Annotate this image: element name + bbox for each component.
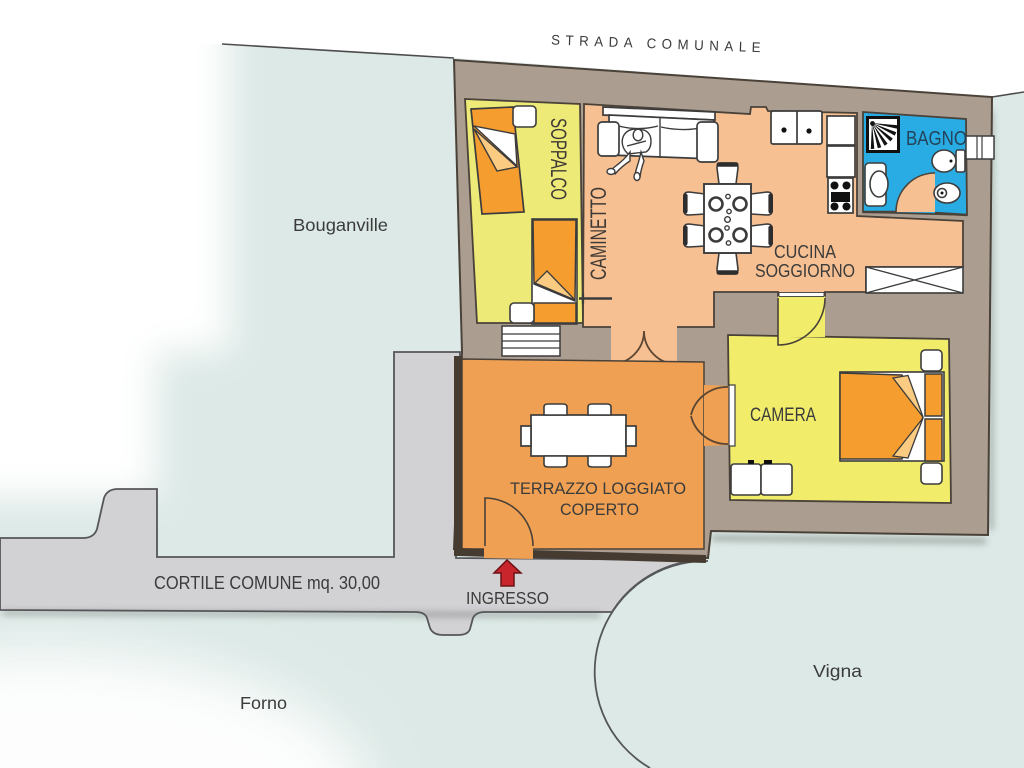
- svg-text:Vigna: Vigna: [813, 661, 862, 681]
- svg-text:CAMERA: CAMERA: [750, 405, 816, 426]
- svg-text:COPERTO: COPERTO: [560, 500, 639, 519]
- svg-text:CORTILE COMUNE mq. 30,00: CORTILE COMUNE mq. 30,00: [154, 573, 380, 593]
- svg-text:Forno: Forno: [240, 693, 287, 713]
- svg-text:SOPPALCO: SOPPALCO: [546, 118, 571, 200]
- svg-text:SOGGIORNO: SOGGIORNO: [755, 261, 855, 281]
- svg-text:CAMINETTO: CAMINETTO: [586, 187, 611, 280]
- svg-text:INGRESSO: INGRESSO: [466, 588, 549, 608]
- svg-text:BAGNO: BAGNO: [906, 127, 967, 150]
- svg-text:CUCINA: CUCINA: [774, 242, 836, 262]
- svg-text:TERRAZZO LOGGIATO: TERRAZZO LOGGIATO: [510, 479, 686, 498]
- svg-text:Bouganville: Bouganville: [293, 215, 388, 235]
